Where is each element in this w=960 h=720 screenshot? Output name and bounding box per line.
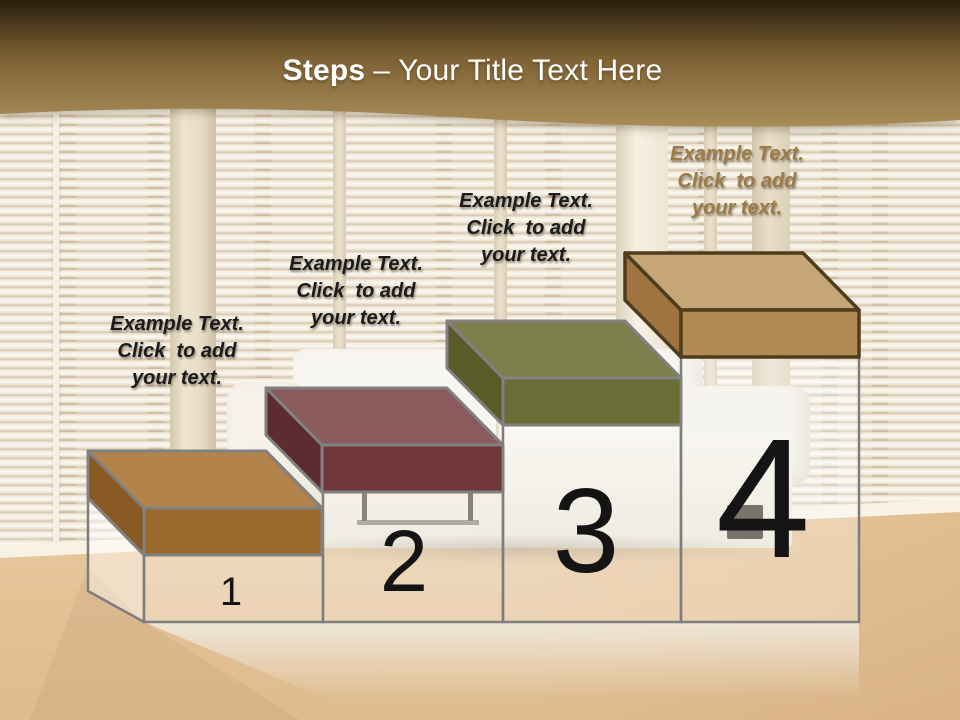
title-keyword: Steps — [283, 54, 366, 87]
step-4-cap-front — [681, 310, 859, 357]
step-4-cap — [625, 253, 859, 357]
step-3-placeholder-text[interactable]: Example Text. Click to add your text. — [416, 188, 636, 269]
title-text: – Your Title Text Here — [373, 54, 662, 87]
step-4-number: 4 — [716, 404, 811, 594]
step-3-number: 3 — [553, 464, 620, 598]
step-2-number: 2 — [380, 513, 428, 610]
step-1-number: 1 — [220, 570, 242, 614]
step-4-placeholder-text[interactable]: Example Text. Click to add your text. — [627, 141, 847, 222]
slide-title[interactable]: Steps– Your Title Text Here — [0, 54, 945, 88]
step-3-cap — [447, 321, 681, 425]
step-3-cap-front — [503, 378, 681, 425]
step-1-cap-front — [144, 508, 322, 555]
slide-canvas: 1 2 3 4 Example Text. Click to add your … — [0, 0, 960, 720]
step-2-cap — [266, 388, 503, 492]
step-2-cap-front — [322, 445, 503, 492]
floor-reflection — [144, 622, 859, 700]
